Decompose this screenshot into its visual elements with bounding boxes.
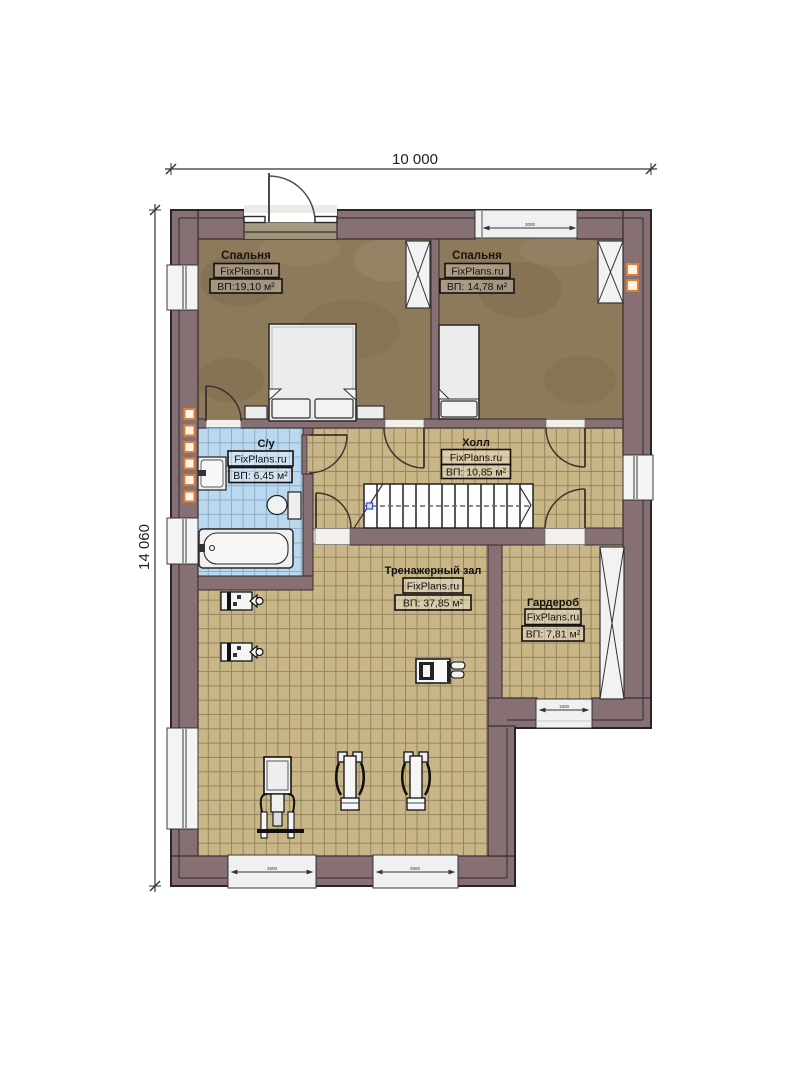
svg-text:2500: 2500 xyxy=(410,866,421,871)
svg-text:FixPlans.ru: FixPlans.ru xyxy=(407,581,460,593)
svg-text:FixPlans.ru: FixPlans.ru xyxy=(527,612,580,624)
svg-text:FixPlans.ru: FixPlans.ru xyxy=(450,452,503,464)
svg-text:Тренажерный зал: Тренажерный зал xyxy=(385,565,482,577)
svg-text:10 000: 10 000 xyxy=(392,151,438,168)
svg-text:ВП:19,10 м²: ВП:19,10 м² xyxy=(217,281,275,293)
svg-text:ВП: 37,85 м²: ВП: 37,85 м² xyxy=(403,598,464,610)
svg-text:14 060: 14 060 xyxy=(136,524,153,570)
svg-text:2500: 2500 xyxy=(267,866,278,871)
svg-text:ВП: 7,81 м²: ВП: 7,81 м² xyxy=(526,629,581,641)
svg-text:Спальня: Спальня xyxy=(221,250,271,262)
svg-text:FixPlans.ru: FixPlans.ru xyxy=(234,454,287,466)
svg-text:Гардероб: Гардероб xyxy=(527,597,579,609)
svg-text:FixPlans.ru: FixPlans.ru xyxy=(451,266,504,278)
svg-text:FixPlans.ru: FixPlans.ru xyxy=(220,266,273,278)
svg-text:Холл: Холл xyxy=(462,437,490,449)
svg-text:Спальня: Спальня xyxy=(452,250,502,262)
svg-text:1500: 1500 xyxy=(559,704,570,709)
svg-text:С/у: С/у xyxy=(257,438,275,450)
svg-text:3000: 3000 xyxy=(525,222,536,227)
svg-text:ВП: 14,78 м²: ВП: 14,78 м² xyxy=(447,281,508,293)
svg-text:ВП: 10,85 м²: ВП: 10,85 м² xyxy=(446,467,507,479)
svg-text:ВП: 6,45 м²: ВП: 6,45 м² xyxy=(233,470,288,482)
